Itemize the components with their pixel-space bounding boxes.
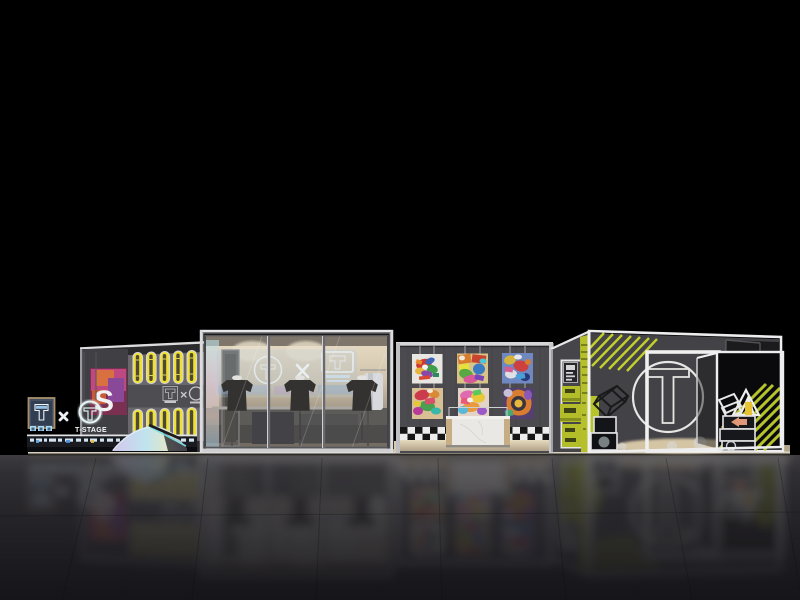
svg-text:S: S: [94, 385, 114, 418]
svg-text:T-STAGE: T-STAGE: [75, 427, 107, 434]
